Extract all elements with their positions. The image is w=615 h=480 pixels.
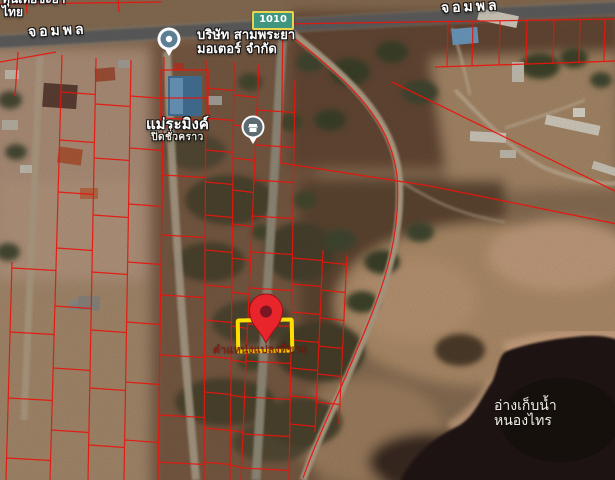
road-label-jomphon-left: จอมพล	[28, 22, 87, 40]
reservoir-label[interactable]: อ่างเก็บน้ำ หนองไทร	[494, 399, 557, 428]
motor-company-label[interactable]: บริษัท สามพระยา มอเตอร์ จำกัด	[197, 29, 295, 56]
satellite-map-canvas[interactable]: ทุนเทียชะยา ไทย จอมพล จอมพล 1010 บริษัท …	[0, 0, 615, 480]
closed-place-label[interactable]: แม่ระมิงค์ ปิดชั่วคราว	[146, 116, 209, 143]
partial-place-label[interactable]: ทุนเทียชะยา ไทย	[2, 0, 66, 18]
sale-plot-annotation: ตำแหน่งแปลงที่ขาย	[213, 344, 307, 356]
road-label-jomphon-right: จอมพล	[441, 0, 500, 16]
